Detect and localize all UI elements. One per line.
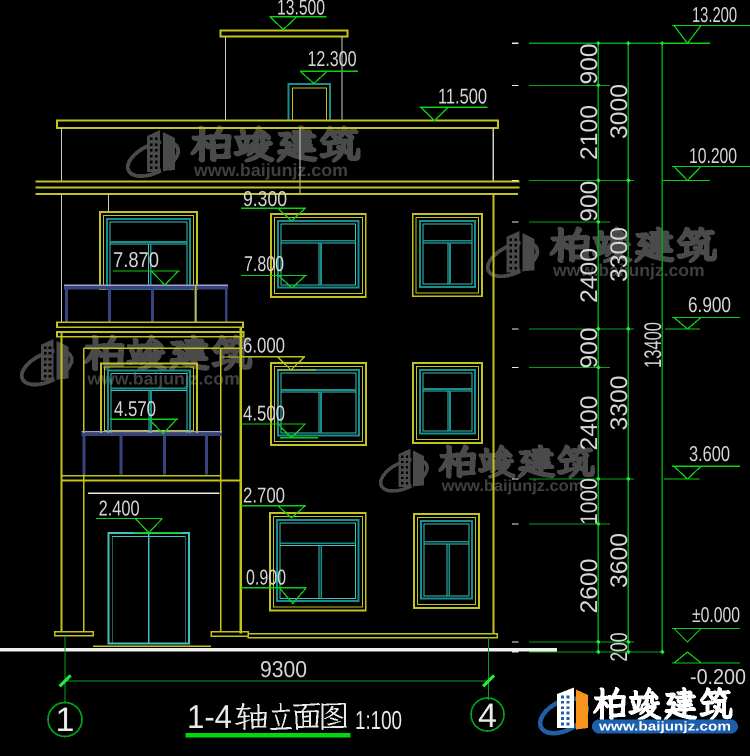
svg-text:11.500: 11.500 (438, 85, 487, 109)
svg-text:13.200: 13.200 (692, 3, 737, 27)
svg-text:6.900: 6.900 (688, 293, 731, 317)
svg-text:3600: 3600 (606, 533, 633, 588)
svg-text:2.400: 2.400 (99, 497, 140, 521)
svg-text:3.600: 3.600 (689, 442, 730, 466)
svg-text:3300: 3300 (606, 227, 633, 282)
svg-text:4: 4 (478, 697, 497, 735)
svg-text:±0.000: ±0.000 (692, 603, 740, 627)
svg-text:1:100: 1:100 (355, 705, 402, 735)
svg-text:1-4: 1-4 (187, 698, 232, 735)
svg-text:900: 900 (576, 44, 603, 85)
svg-text:9.300: 9.300 (243, 187, 287, 211)
svg-text:10.200: 10.200 (689, 144, 737, 168)
svg-text:www.baijunjz.com: www.baijunjz.com (598, 719, 731, 734)
svg-text:0.900: 0.900 (246, 566, 286, 590)
svg-text:1000: 1000 (576, 478, 603, 525)
svg-text:7.870: 7.870 (113, 248, 159, 272)
svg-text:2600: 2600 (576, 559, 603, 614)
svg-text:3300: 3300 (606, 376, 633, 431)
svg-text:2400: 2400 (576, 248, 603, 303)
svg-text:2100: 2100 (576, 105, 603, 160)
svg-text:www.baijunjz.com: www.baijunjz.com (193, 160, 348, 180)
svg-text:13400: 13400 (640, 322, 667, 368)
svg-text:900: 900 (576, 181, 603, 222)
svg-text:4.570: 4.570 (114, 397, 156, 421)
svg-text:7.800: 7.800 (244, 252, 284, 276)
svg-text:900: 900 (576, 328, 603, 369)
svg-text:-0.200: -0.200 (690, 665, 746, 689)
svg-text:2.700: 2.700 (243, 484, 285, 508)
svg-text:9300: 9300 (260, 656, 307, 682)
svg-text:6.000: 6.000 (243, 334, 285, 358)
svg-text:3000: 3000 (606, 84, 633, 139)
svg-text:200: 200 (606, 633, 633, 662)
svg-text:1: 1 (56, 701, 75, 739)
svg-text:12.300: 12.300 (308, 47, 357, 71)
svg-text:4.500: 4.500 (243, 402, 285, 426)
svg-text:2400: 2400 (576, 396, 603, 451)
